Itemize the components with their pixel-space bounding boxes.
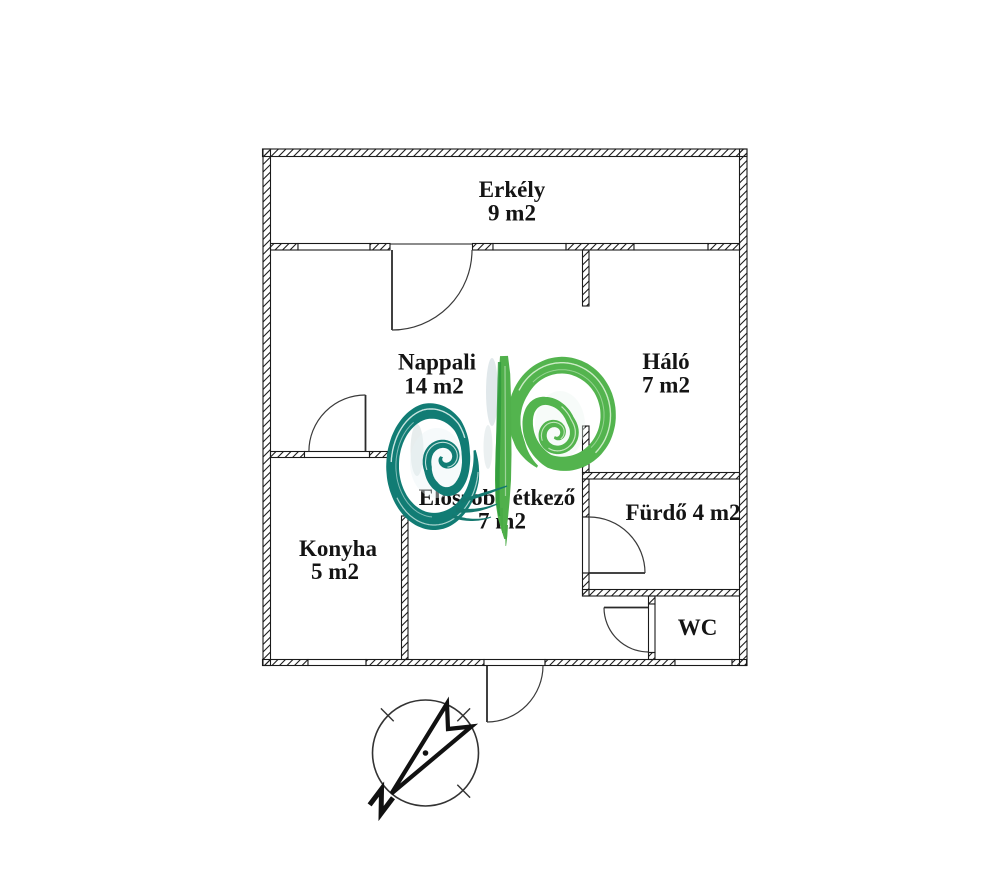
svg-text:Háló: Háló [642, 349, 689, 374]
svg-text:Erkély: Erkély [479, 177, 546, 202]
svg-text:WC: WC [678, 615, 718, 640]
svg-text:5 m2: 5 m2 [311, 559, 359, 584]
svg-text:7 m2: 7 m2 [642, 373, 690, 398]
svg-text:Konyha: Konyha [299, 536, 377, 561]
svg-text:Fürdő 4 m2: Fürdő 4 m2 [626, 500, 741, 525]
svg-text:14 m2: 14 m2 [404, 374, 463, 399]
svg-text:9 m2: 9 m2 [488, 201, 536, 226]
svg-text:Nappali: Nappali [398, 350, 477, 375]
